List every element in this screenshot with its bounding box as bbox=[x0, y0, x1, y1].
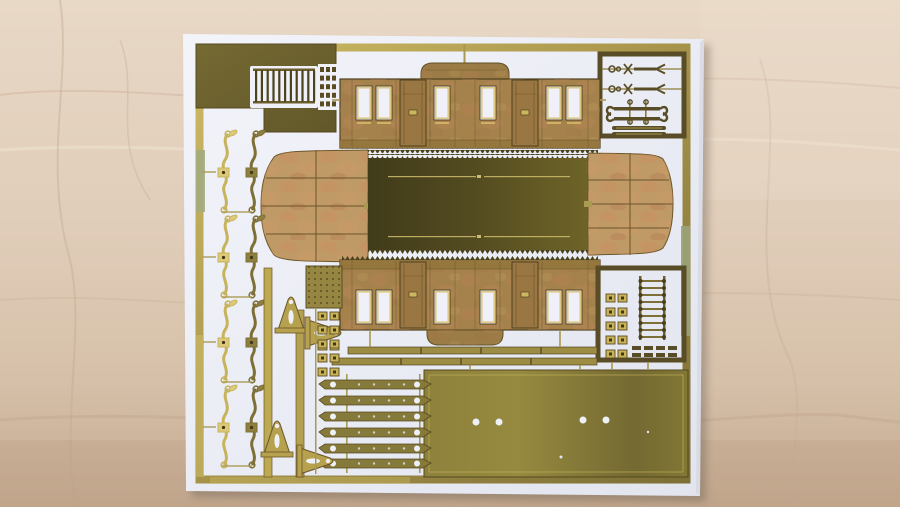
coach-window bbox=[376, 86, 392, 120]
frame-highlight-left bbox=[196, 335, 204, 477]
coach-window bbox=[480, 290, 496, 324]
coach-window bbox=[434, 290, 450, 324]
coach-door bbox=[400, 262, 426, 328]
rivet-teeth-edge bbox=[342, 148, 598, 153]
coach-window bbox=[546, 290, 562, 324]
coach-door bbox=[512, 262, 538, 328]
coach-window bbox=[356, 290, 372, 324]
grille-grid-part bbox=[318, 64, 338, 110]
floor-plate bbox=[424, 370, 688, 477]
sprue-tab bbox=[464, 44, 466, 65]
coach-window bbox=[546, 86, 562, 120]
photo-etched-kit-photograph bbox=[0, 0, 900, 507]
coach-window bbox=[356, 86, 372, 120]
coach-door bbox=[400, 80, 426, 146]
coach-window bbox=[566, 290, 582, 324]
center-roof-panel bbox=[368, 154, 588, 255]
coach-window bbox=[480, 86, 496, 120]
frame-green-tint-left bbox=[196, 150, 205, 212]
coach-door bbox=[512, 80, 538, 146]
roof-end-right bbox=[584, 153, 673, 255]
roof-end-left bbox=[261, 150, 372, 262]
coach-window bbox=[376, 290, 392, 324]
coach-window bbox=[566, 86, 582, 120]
frame-highlight-bottom bbox=[210, 477, 410, 484]
coach-window bbox=[434, 86, 450, 120]
